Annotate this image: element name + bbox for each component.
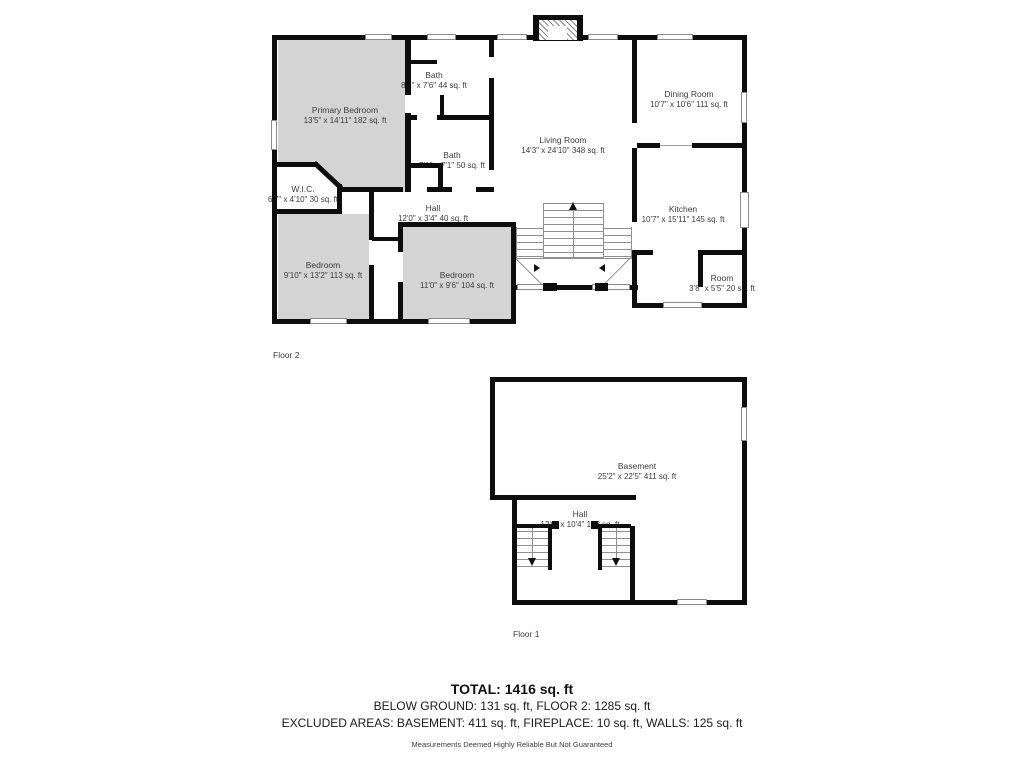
wall [272,209,342,214]
door-jamb [552,521,559,529]
window [741,92,747,123]
wall [630,526,635,605]
stair-direction-line [532,528,533,559]
stair-up-arrow-icon [569,202,577,210]
room-name: Dining Room [650,89,728,100]
room-dims: 25'2" x 22'5" 411 sq. ft [598,472,676,482]
wall [272,319,516,324]
wall [427,187,452,192]
wall [406,163,438,168]
room-name: Basement [598,461,676,472]
below-ground-text: BELOW GROUND: 131 sq. ft, FLOOR 2: 1285 … [0,698,1024,715]
room-label-hall-floor2: Hall 12'0" x 3'4" 40 sq. ft [398,203,468,224]
room-label-bath-upper: Bath 8'2" x 7'6" 44 sq. ft [401,70,467,91]
room-dims: 6'7" x 4'10" 30 sq. ft [268,195,338,205]
window [657,34,693,40]
window [427,34,456,40]
window [588,34,618,40]
room-label-living-room: Living Room 14'3" x 24'10" 348 sq. ft [521,135,604,156]
room-label-primary-bedroom: Primary Bedroom 13'5" x 14'11" 182 sq. f… [304,105,387,126]
window [428,318,470,324]
wall [372,237,399,241]
landing-line [516,258,632,259]
stair-tread-line [604,256,632,257]
wall [411,115,417,120]
disclaimer-text: Measurements Deemed Highly Reliable But … [0,740,1024,749]
floor2-caption: Floor 2 [273,350,299,360]
area-summary: TOTAL: 1416 sq. ft BELOW GROUND: 131 sq.… [0,681,1024,749]
room-dims: 10'7" x 10'6" 111 sq. ft [650,100,728,110]
wall [411,60,437,64]
wall [476,187,494,192]
stair-tread-line [604,235,632,236]
window [677,599,707,605]
wall [405,113,411,192]
window [310,318,347,324]
room-label-basement: Basement 25'2" x 22'5" 411 sq. ft [598,461,676,482]
stair-direction-line [573,206,574,258]
stair-tread-line [517,566,548,567]
floor1-caption: Floor 1 [513,629,539,639]
wall [272,162,318,167]
window [741,407,747,441]
room-dims: 10'7" x 15'11" 145 sq. ft [642,215,725,225]
wall [698,250,703,287]
wall [742,35,747,308]
stair-tread-line [516,235,544,236]
stair-edge-line [516,227,517,258]
wall [490,377,495,500]
stair-diagonal-line [604,257,631,284]
wall [490,377,747,382]
stair-tread-line [602,566,630,567]
floor-plan-page: Primary Bedroom 13'5" x 14'11" 182 sq. f… [0,0,1024,768]
wall [398,282,403,324]
window [663,302,702,308]
wall [632,40,637,123]
room-name: Bath [419,150,485,161]
stair-tread-line [516,256,544,257]
stair-down-arrow-icon [612,558,620,566]
wall [637,143,660,148]
stair-right-arrow-icon [534,264,540,272]
room-label-dining-room: Dining Room 10'7" x 10'6" 111 sq. ft [650,89,728,110]
room-name: Living Room [521,135,604,146]
wall [692,143,747,148]
wall [398,222,403,252]
wall [632,148,637,222]
door-jamb [543,283,557,291]
room-label-bedroom-left: Bedroom 9'10" x 13'2" 113 sq. ft [284,260,362,281]
wall [598,524,602,570]
wall [398,222,516,227]
total-area-text: TOTAL: 1416 sq. ft [0,681,1024,698]
room-label-wic: W.I.C. 6'7" x 4'10" 30 sq. ft [268,184,338,205]
wall [489,40,494,57]
wall [512,500,517,605]
wall [632,250,653,255]
wall [602,524,631,528]
room-dims: 13'5" x 14'11" 182 sq. ft [304,116,387,126]
stair-tread-line [604,242,632,243]
room-name: Bedroom [284,260,362,271]
stair-tread-line [604,249,632,250]
door-line [660,145,692,146]
room-name: Bath [401,70,467,81]
wall [489,78,494,170]
stair-tread-line [516,242,544,243]
window [271,120,277,150]
window [740,192,749,228]
wall [548,524,552,570]
room-name: Hall [540,509,619,520]
stair-left-arrow-icon [599,264,605,272]
room-dims: 11'0" x 9'6" 104 sq. ft [420,281,494,291]
room-label-kitchen: Kitchen 10'7" x 15'11" 145 sq. ft [642,204,725,225]
room-name: Bedroom [420,270,494,281]
stair-tread-line [516,249,544,250]
wall [698,250,747,255]
wall [632,252,637,285]
stair-tread-line [516,228,544,229]
wall [272,35,277,324]
door-jamb [595,283,608,291]
room-dims: 9'10" x 13'2" 113 sq. ft [284,271,362,281]
stair-down-arrow-icon [528,558,536,566]
window [497,34,527,40]
room-dims: 8'2" x 7'6" 44 sq. ft [401,81,467,91]
chimney-flue [548,26,567,40]
room-name: Kitchen [642,204,725,215]
room-dims: 14'3" x 24'10" 348 sq. ft [521,146,604,156]
wall [369,192,374,240]
stair-tread-line [604,228,632,229]
stair-direction-line [616,528,617,559]
wall [511,222,516,324]
wall [405,35,411,95]
room-label-bedroom-middle: Bedroom 11'0" x 9'6" 104 sq. ft [420,270,494,291]
excluded-areas-text: EXCLUDED AREAS: BASEMENT: 411 sq. ft, FI… [0,715,1024,732]
wall [369,265,374,324]
wall [437,115,489,120]
wall [440,95,444,117]
room-name: Primary Bedroom [304,105,387,116]
wall [517,524,548,528]
window [365,34,392,40]
room-name: W.I.C. [268,184,338,195]
door-jamb [591,521,598,529]
room-name: Hall [398,203,468,214]
